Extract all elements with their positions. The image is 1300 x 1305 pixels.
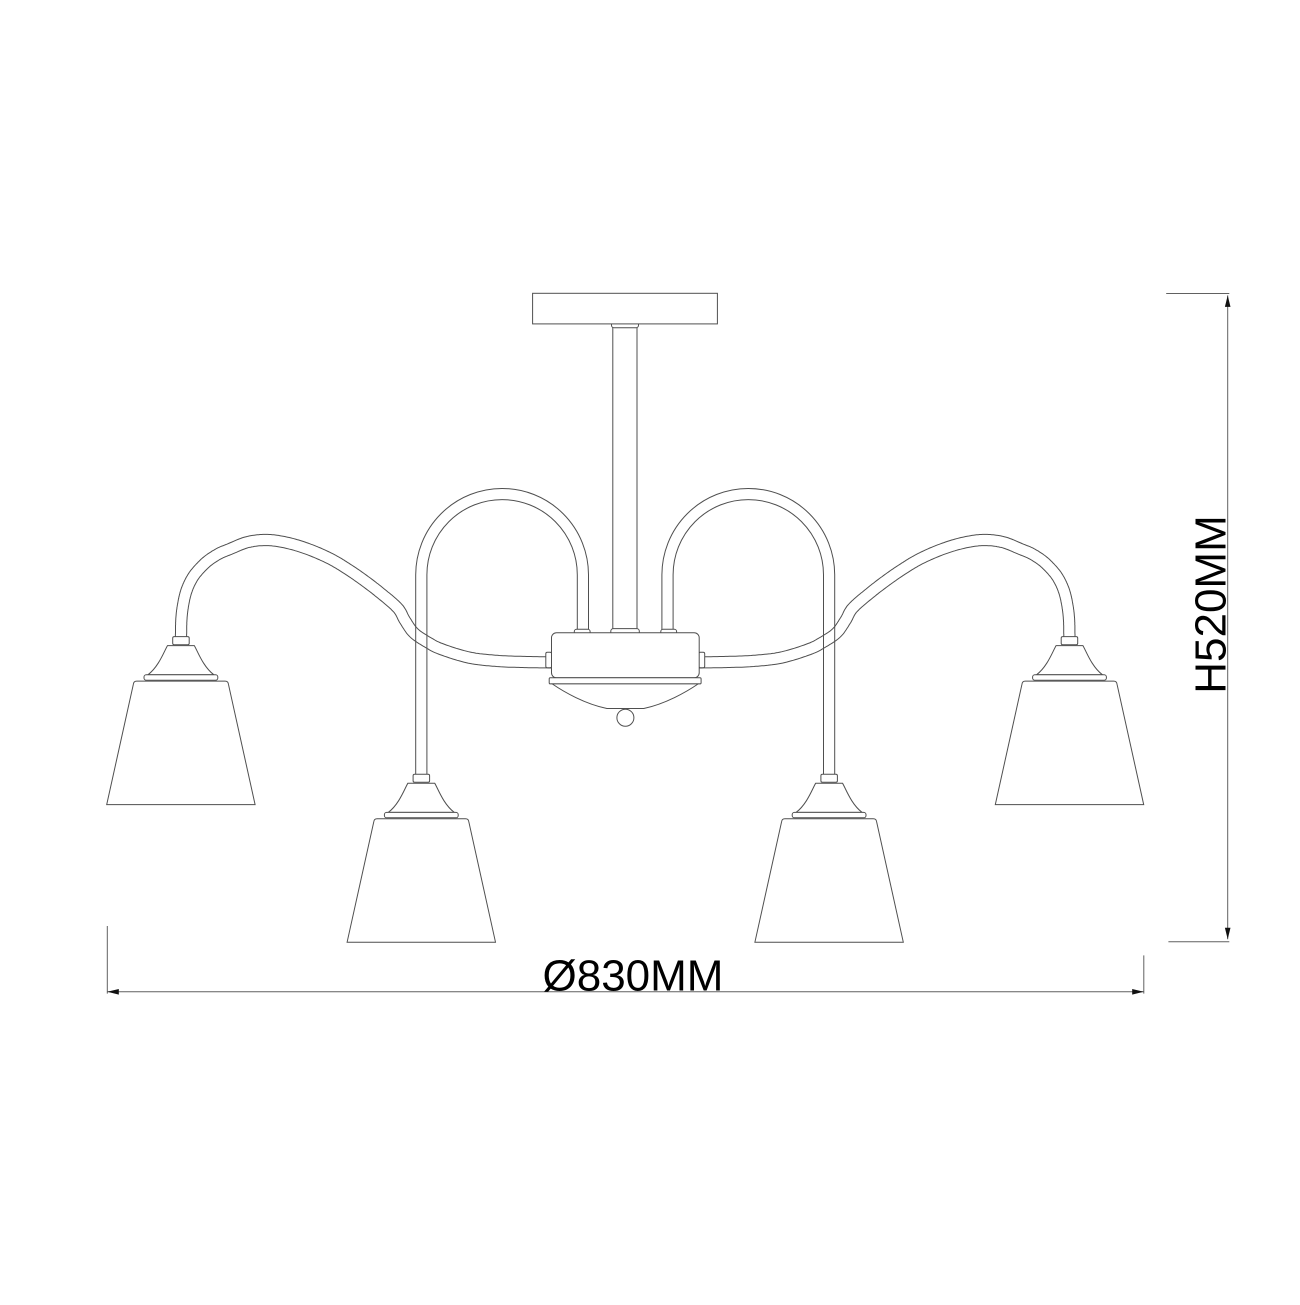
svg-text:Ø830MM: Ø830MM: [543, 952, 724, 1001]
svg-text:H520MM: H520MM: [1187, 515, 1236, 694]
